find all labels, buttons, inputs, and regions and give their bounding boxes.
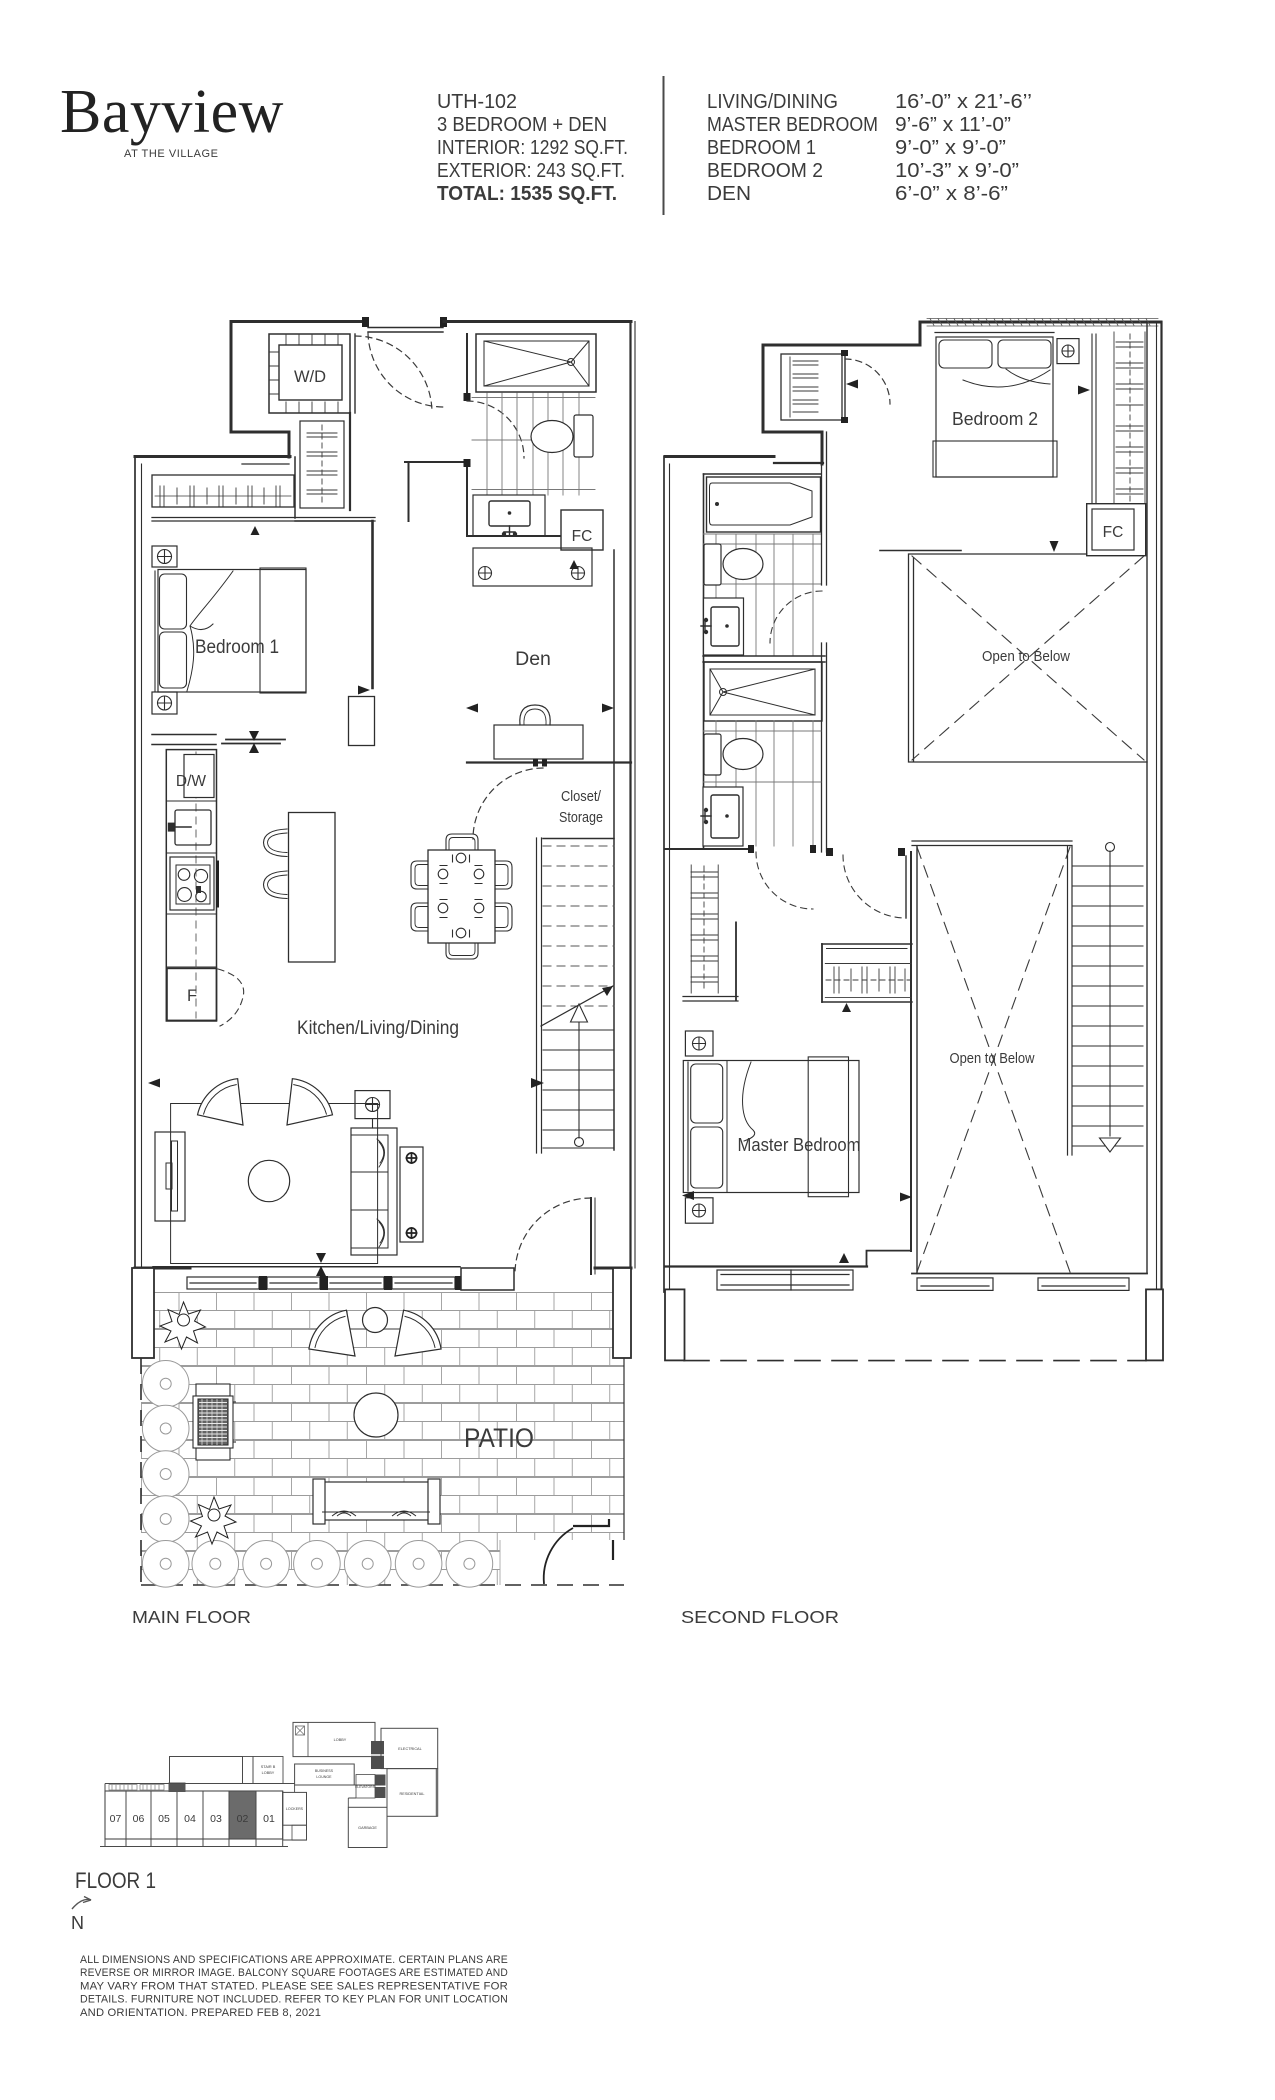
svg-text:DETAILS. FURNITURE NOT INCLUDE: DETAILS. FURNITURE NOT INCLUDED. REFER T… [80,1994,508,2006]
svg-text:05: 05 [158,1813,170,1825]
svg-text:AT THE VILLAGE: AT THE VILLAGE [124,148,220,160]
svg-text:04: 04 [184,1813,196,1825]
svg-text:DEN: DEN [707,183,751,205]
svg-text:3 BEDROOM + DEN: 3 BEDROOM + DEN [437,114,607,136]
svg-text:Bayview: Bayview [60,78,284,146]
svg-text:FC: FC [572,528,593,545]
svg-text:Bedroom 1: Bedroom 1 [195,637,279,658]
svg-text:BUSINESS: BUSINESS [315,1769,334,1773]
svg-text:Den: Den [515,648,551,670]
svg-text:D/W: D/W [176,773,207,790]
svg-text:9’-6” x 11’-0”: 9’-6” x 11’-0” [895,114,1011,136]
svg-text:16’-0” x 21’-6’’: 16’-0” x 21’-6’’ [895,91,1032,113]
svg-text:MAY VARY FROM THAT STATED. PLE: MAY VARY FROM THAT STATED. PLEASE SEE SA… [80,1980,508,1992]
svg-text:MASTER BEDROOM: MASTER BEDROOM [707,114,878,136]
svg-text:W/D: W/D [294,368,326,386]
svg-text:02: 02 [237,1813,249,1825]
svg-text:ELEVATORS: ELEVATORS [355,1785,376,1789]
svg-text:BEDROOM 1: BEDROOM 1 [707,137,816,159]
svg-text:MAIN FLOOR: MAIN FLOOR [132,1607,251,1627]
svg-text:Bedroom 2: Bedroom 2 [952,408,1038,429]
svg-text:Open to Below: Open to Below [982,648,1070,665]
svg-text:SECOND FLOOR: SECOND FLOOR [681,1607,839,1627]
svg-text:Kitchen/Living/Dining: Kitchen/Living/Dining [297,1017,459,1039]
svg-text:UTH-102: UTH-102 [437,91,517,113]
svg-text:STAIR B: STAIR B [261,1765,276,1769]
svg-text:TOTAL: 1535 SQ.FT.: TOTAL: 1535 SQ.FT. [437,183,617,205]
svg-text:N: N [71,1913,84,1933]
svg-text:FC: FC [1103,524,1124,541]
svg-text:GARBAGE: GARBAGE [358,1826,377,1830]
svg-text:LIVING/DINING: LIVING/DINING [707,91,838,113]
svg-text:LOCKERS: LOCKERS [286,1807,304,1811]
svg-text:6’-0” x 8’-6”: 6’-0” x 8’-6” [895,183,1008,205]
svg-text:BEDROOM 2: BEDROOM 2 [707,160,823,182]
svg-text:F: F [187,987,197,1005]
svg-text:01: 01 [263,1813,275,1825]
svg-text:FLOOR 1: FLOOR 1 [75,1868,156,1893]
svg-text:06: 06 [133,1813,145,1825]
svg-text:07: 07 [110,1813,122,1825]
svg-text:AND ORIENTATION. PREPARED FEB: AND ORIENTATION. PREPARED FEB 8, 2021 [80,2007,321,2019]
svg-text:REVERSE OR MIRROR IMAGE. BALCO: REVERSE OR MIRROR IMAGE. BALCONY SQUARE … [80,1967,508,1979]
svg-text:Storage: Storage [559,810,603,826]
svg-text:EXTERIOR: 243 SQ.FT.: EXTERIOR: 243 SQ.FT. [437,160,625,182]
svg-text:Master Bedroom: Master Bedroom [738,1134,861,1155]
svg-text:ELECTRICAL: ELECTRICAL [398,1747,421,1751]
svg-text:Open to Below: Open to Below [950,1050,1035,1067]
svg-text:LOBBY: LOBBY [334,1738,347,1742]
svg-text:INTERIOR: 1292 SQ.FT.: INTERIOR: 1292 SQ.FT. [437,137,628,159]
svg-text:LOBBY: LOBBY [262,1771,275,1775]
svg-text:Closet/: Closet/ [561,789,602,805]
svg-text:PATIO: PATIO [464,1423,534,1453]
svg-text:RESIDENTIAL: RESIDENTIAL [400,1792,425,1796]
svg-text:LOUNGE: LOUNGE [316,1775,332,1779]
svg-text:ALL DIMENSIONS AND SPECIFICATI: ALL DIMENSIONS AND SPECIFICATIONS ARE AP… [80,1954,508,1966]
svg-text:03: 03 [210,1813,222,1825]
svg-text:9’-0” x 9’-0”: 9’-0” x 9’-0” [895,137,1006,159]
svg-text:10’-3” x 9’-0”: 10’-3” x 9’-0” [895,160,1019,182]
